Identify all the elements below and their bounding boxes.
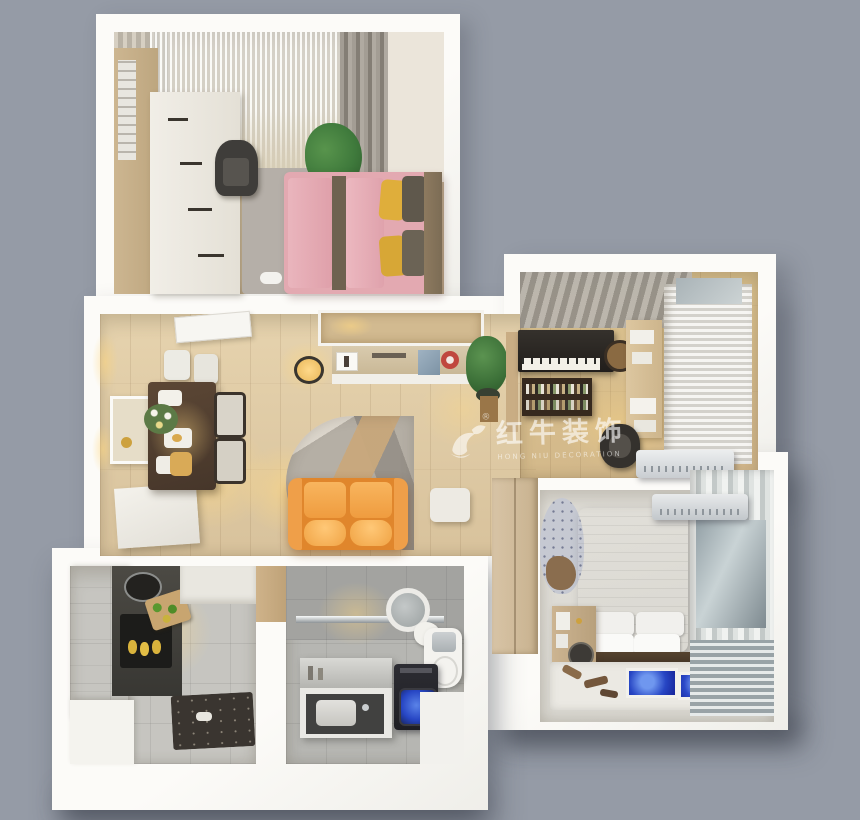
dining-table (148, 382, 216, 490)
book-row (526, 384, 588, 394)
piano-black-keys (522, 358, 600, 364)
shelf-light (329, 315, 373, 337)
pink-duvet (346, 178, 384, 288)
toiletry-bottle (318, 668, 323, 680)
pink-double-bed (284, 172, 442, 294)
tv-niche-shelf (318, 310, 484, 346)
vanity-counter (300, 658, 392, 738)
nightstand-card (556, 634, 568, 648)
brand-name-en: HONG NIU DECORATION (497, 451, 621, 461)
kitchen-floor-mat (171, 692, 256, 750)
floorplan-render: ® 红牛装饰 HONG NIU DECORATION (0, 0, 860, 820)
corn (128, 640, 137, 654)
sofa-back-pillow (350, 520, 392, 546)
slipper (196, 712, 212, 721)
decor-photo-frame (336, 352, 358, 371)
decor-items (372, 353, 406, 358)
kitchen-counter (112, 566, 182, 696)
chair-seat (223, 158, 249, 186)
wardrobe-door-seam (514, 478, 516, 654)
vanity-mirror-backsplash (300, 658, 392, 688)
ac-vents (660, 509, 740, 515)
green-pepper (167, 603, 178, 614)
orange-sofa (288, 478, 408, 550)
window-glass-reflection (696, 520, 766, 628)
green-pepper (152, 602, 163, 613)
tv-panel (418, 350, 440, 375)
wall-art (110, 396, 152, 464)
bathroom-wall-patch (420, 692, 464, 764)
chair-blanket (546, 556, 576, 590)
faucet (362, 704, 369, 711)
sofa-seat-cushion (304, 482, 346, 518)
bedroom-chair (215, 140, 258, 196)
sofa-back-pillow (304, 520, 346, 546)
dining-chair-dark (214, 438, 246, 484)
kitchen-counter-white (180, 566, 256, 604)
blue-floor-mat (626, 668, 678, 698)
book-row (526, 400, 588, 410)
wardrobe-books (118, 60, 136, 160)
study-window-glass (676, 278, 742, 304)
dresser-handle (180, 162, 202, 165)
basin (316, 700, 356, 726)
white-pillow (636, 612, 684, 636)
master-air-conditioner (652, 494, 748, 520)
bread-basket (170, 452, 192, 476)
brown-throw (332, 176, 346, 290)
bathroom-light-pool (318, 582, 394, 646)
nightstand-card (556, 612, 570, 630)
vanity-sink-counter (306, 694, 384, 734)
bull-logo-icon (443, 419, 490, 464)
dining-chair-dark (214, 392, 246, 438)
sliding-wardrobe (492, 478, 538, 654)
dresser-handle (188, 208, 212, 211)
corn (140, 642, 149, 656)
study-window-curtain (664, 284, 752, 464)
flower-bouquet (144, 404, 178, 434)
red-bowl (441, 351, 459, 369)
pendant-lamp (294, 356, 324, 384)
desk-paper (630, 330, 654, 344)
food (172, 434, 182, 442)
sofa-armrest (288, 478, 302, 550)
wall-sconce-glow (92, 332, 118, 392)
upright-piano (518, 330, 614, 372)
dark-pillow (402, 176, 426, 222)
kitchen-wood-door (256, 566, 286, 622)
kitchen-lower-cabinet (70, 700, 134, 764)
washer-control-panel (400, 668, 432, 673)
gold-knob (576, 618, 582, 624)
side-table (430, 488, 470, 522)
sofa-seat-cushion (350, 482, 392, 518)
desk-paper (632, 352, 652, 364)
slippers (260, 272, 282, 284)
piano-keys (522, 358, 600, 370)
corn (152, 640, 161, 654)
dresser-handle (198, 254, 224, 257)
registered-mark: ® (481, 413, 490, 422)
toilet-tank (432, 632, 456, 652)
dark-pillow (402, 230, 426, 276)
art-gold-dot (121, 437, 132, 448)
sofa-armrest (394, 478, 408, 550)
dining-chair-white (194, 354, 218, 384)
dresser-handle (168, 118, 188, 121)
pink-duvet (288, 178, 332, 288)
toiletry-bottle (308, 666, 313, 680)
brand-name-cn: 红牛装饰 (496, 418, 629, 448)
dining-chair-white (164, 350, 190, 380)
brand-watermark: ® 红牛装饰 HONG NIU DECORATION (443, 409, 644, 468)
bed-headboard (424, 172, 442, 294)
yellow-pepper (162, 614, 172, 624)
curtain-silver-stack (690, 640, 774, 716)
console-front-edge (332, 374, 472, 384)
sideboard (114, 483, 200, 549)
frame-figure (344, 356, 349, 367)
